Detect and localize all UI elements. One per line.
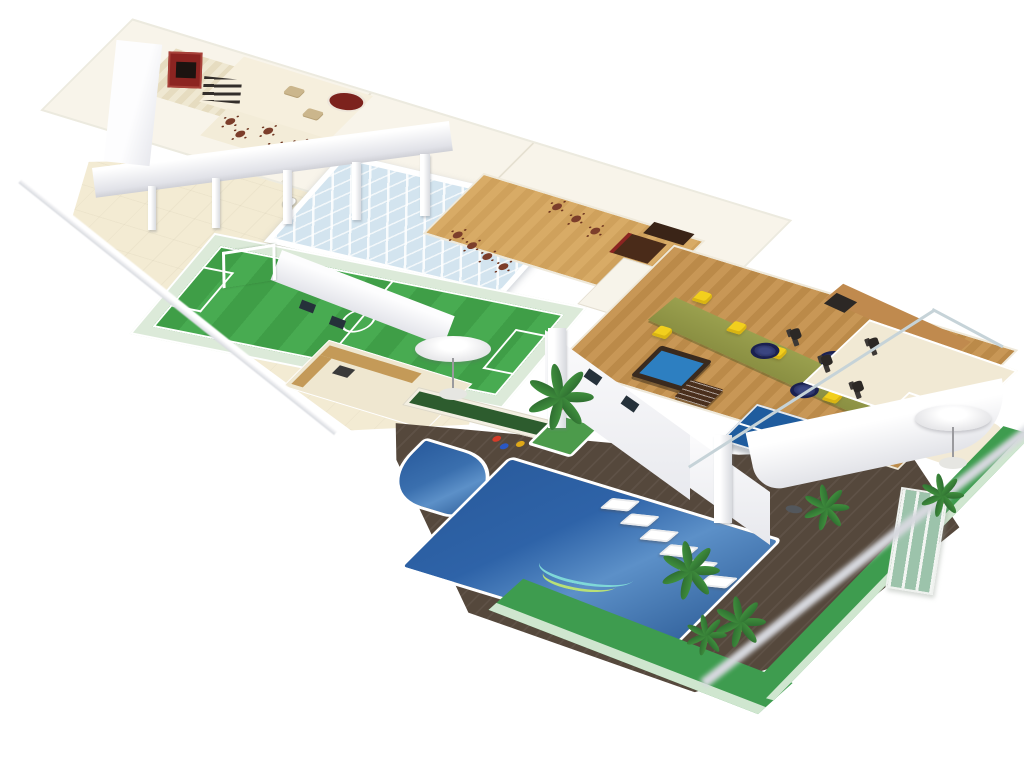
support-pillar (212, 178, 220, 228)
support-pillar (283, 170, 292, 224)
grill (332, 365, 355, 378)
parasol-table (439, 388, 467, 400)
cinema-screen-wall (167, 51, 202, 88)
cinema-screen (176, 62, 197, 79)
amenity-floorplan-render (0, 0, 1024, 768)
support-pillar (420, 154, 430, 216)
support-pillar (352, 162, 361, 220)
cinema-seats (202, 76, 242, 104)
parasol-table (939, 457, 967, 469)
parasol-seating (415, 336, 491, 406)
support-pillar (148, 186, 156, 230)
parasol-seating (915, 405, 991, 475)
